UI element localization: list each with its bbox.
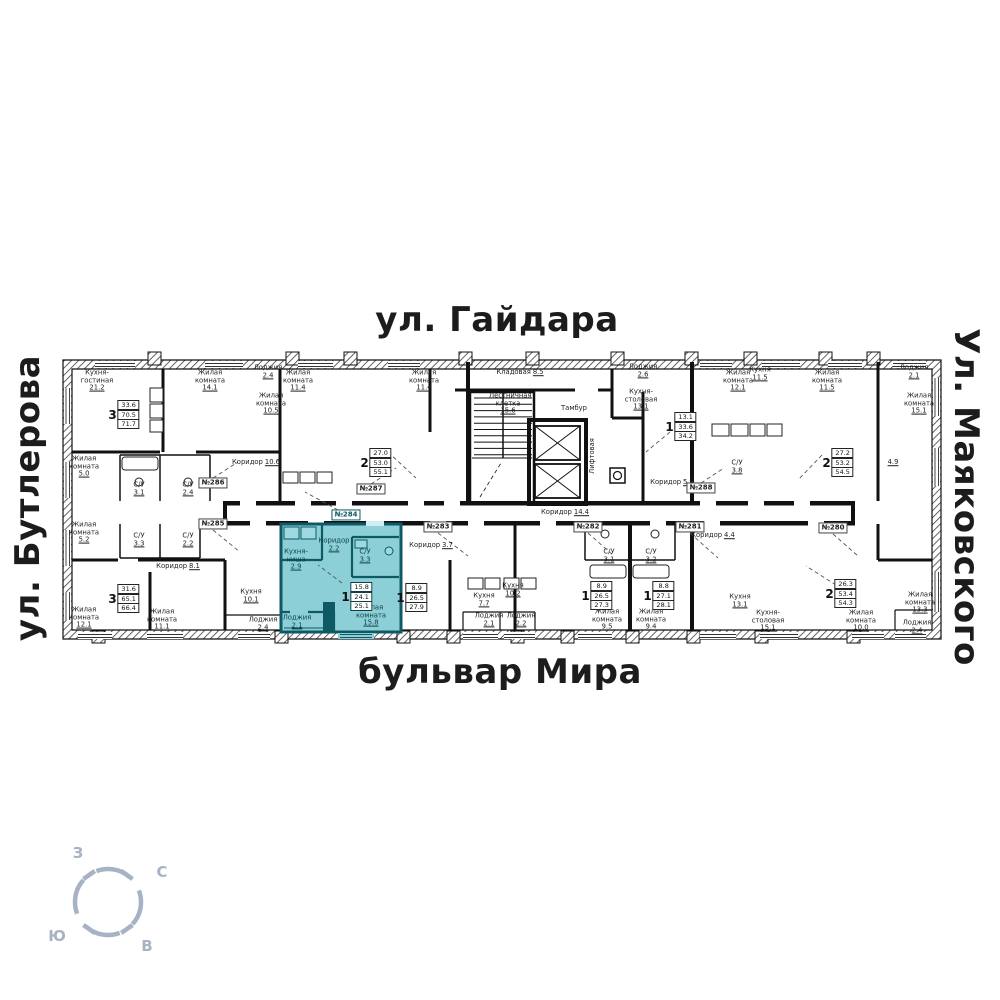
room-label: Кухня10.2 xyxy=(502,582,523,597)
area-value: 27.3 xyxy=(591,600,613,610)
area-value: 71.7 xyxy=(118,419,140,429)
room-label: Коридор8.1 xyxy=(156,563,200,571)
room-label: Лоджия2.4 xyxy=(249,616,278,631)
rooms-count: 3 xyxy=(108,592,116,606)
compass-ticks xyxy=(83,871,132,933)
room-label: Коридор4.4 xyxy=(691,532,735,540)
elevator-shafts xyxy=(529,420,625,504)
rooms-count: 1 xyxy=(396,591,404,605)
street-label-mayakovskogo: Ул. Маяковского xyxy=(946,328,986,666)
room-label: 4.9 xyxy=(888,459,899,467)
room-label: Жилая комната10.0 xyxy=(842,610,880,633)
room-label: Лоджия2.4 xyxy=(903,619,932,634)
room-label: С/У3.8 xyxy=(731,459,742,474)
room-label: Лоджия2.1 xyxy=(283,614,312,629)
room-label: Тамбур xyxy=(561,405,587,413)
area-badge[interactable]: 113.133.634.2 xyxy=(665,413,696,441)
street-label-bulvar-mira: бульвар Мира xyxy=(358,652,642,692)
apartment-tag-283[interactable]: №283 xyxy=(423,521,452,532)
room-label: Лестничная клетка15.6 xyxy=(489,393,527,416)
area-badge[interactable]: 331.665.166.4 xyxy=(108,585,139,613)
apartment-tag-287[interactable]: №287 xyxy=(356,483,385,494)
area-value: 54.3 xyxy=(835,598,857,608)
room-label: С/У2.4 xyxy=(182,481,193,496)
room-label: Кладовая8.5 xyxy=(496,369,543,377)
area-badge[interactable]: 18.827.128.1 xyxy=(643,582,674,610)
area-value: 66.4 xyxy=(118,603,140,613)
room-label: Кухня-столовая15.1 xyxy=(749,610,787,633)
area-badge[interactable]: 18.926.527.3 xyxy=(581,582,612,610)
compass-north-label: С xyxy=(156,863,167,881)
room-label: Коридор2.2 xyxy=(319,537,350,552)
compass-south-label: Ю xyxy=(48,927,66,945)
apartment-tag-288[interactable]: №288 xyxy=(686,482,715,493)
room-label: С/У3.3 xyxy=(133,532,144,547)
area-value: 25.1 xyxy=(351,601,373,611)
apartment-tag-286[interactable]: №286 xyxy=(198,477,227,488)
room-label: Жилая комната11.5 xyxy=(808,370,846,393)
room-label: Жилая комната12.1 xyxy=(65,607,103,630)
rooms-count: 1 xyxy=(643,589,651,603)
room-label: Жилая комната9.5 xyxy=(588,609,626,632)
apartment-tag-282[interactable]: №282 xyxy=(573,521,602,532)
area-badge[interactable]: 227.253.254.5 xyxy=(822,449,853,477)
room-label: Жилая комната13.3 xyxy=(901,592,939,615)
room-label: Жилая комната11.4 xyxy=(405,370,443,393)
room-label: Кухня-ниша2.9 xyxy=(277,549,315,572)
rooms-count: 1 xyxy=(665,420,673,434)
street-label-butlerova: ул. Бутлерова xyxy=(8,355,48,641)
room-label: Лоджия2.4 xyxy=(254,364,283,379)
rooms-count: 1 xyxy=(581,589,589,603)
room-label: Лоджия2.6 xyxy=(629,363,658,378)
room-label: Лоджия2.1 xyxy=(475,612,504,627)
room-label: Жилая комната5.0 xyxy=(65,456,103,479)
room-label: Коридор3.7 xyxy=(409,542,453,550)
compass-west-label: З xyxy=(73,844,84,862)
room-label: С/У2.2 xyxy=(182,532,193,547)
rooms-count: 2 xyxy=(360,456,368,470)
room-label: Кухня7.7 xyxy=(473,592,494,607)
room-label: С/У3.1 xyxy=(603,548,614,563)
rooms-count: 1 xyxy=(341,590,349,604)
room-label: Жилая комната5.2 xyxy=(65,522,103,545)
room-label: С/У3.3 xyxy=(359,548,370,563)
area-badge[interactable]: 226.353.454.3 xyxy=(825,580,856,608)
apartment-tag-285[interactable]: №285 xyxy=(198,518,227,529)
room-label: Кухня-столовая13.1 xyxy=(622,389,660,412)
room-label: Коридор10.6 xyxy=(232,459,280,467)
room-label: С/У3.2 xyxy=(645,548,656,563)
room-label: Кухня-гостиная21.2 xyxy=(78,370,116,393)
room-label: Лифтовая xyxy=(589,438,597,474)
area-value: 34.2 xyxy=(675,431,697,441)
room-label: Коридор14.4 xyxy=(541,509,589,517)
room-label: С/У3.1 xyxy=(133,481,144,496)
area-value: 28.1 xyxy=(653,600,675,610)
trash-chute-icon xyxy=(610,468,625,483)
area-badge[interactable]: 18.926.527.9 xyxy=(396,584,427,612)
area-badge[interactable]: 333.670.571.7 xyxy=(108,401,139,429)
room-label: Жилая комната11.4 xyxy=(279,370,317,393)
apartment-tag-281[interactable]: №281 xyxy=(675,521,704,532)
room-label: Кухня11.5 xyxy=(749,366,770,381)
area-badge[interactable]: 227.053.055.1 xyxy=(360,449,391,477)
area-badge[interactable]: 115.824.125.1 xyxy=(341,583,372,611)
street-label-gaidara: ул. Гайдара xyxy=(375,300,618,340)
room-label: Лоджия2.2 xyxy=(507,612,536,627)
compass xyxy=(45,840,175,970)
apartment-tag-284[interactable]: №284 xyxy=(331,509,360,520)
rooms-count: 2 xyxy=(825,587,833,601)
area-value: 55.1 xyxy=(370,467,392,477)
area-value: 54.5 xyxy=(832,467,854,477)
floorplan-page: ул. Гайдара бульвар Мира ул. Бутлерова У… xyxy=(0,0,1000,1000)
rooms-count: 2 xyxy=(822,456,830,470)
room-label: Лоджия2.1 xyxy=(900,364,929,379)
room-label: Жилая комната15.1 xyxy=(900,393,938,416)
room-label: Жилая комната11.1 xyxy=(143,609,181,632)
room-label: Кухня13.1 xyxy=(729,593,750,608)
room-label: Кухня10.1 xyxy=(240,588,261,603)
compass-east-label: В xyxy=(141,937,152,955)
area-value: 27.9 xyxy=(406,602,428,612)
room-label: Жилая комната10.5 xyxy=(252,393,290,416)
room-label: Жилая комната9.4 xyxy=(632,609,670,632)
apartment-tag-280[interactable]: №280 xyxy=(818,522,847,533)
room-label: Жилая комната14.1 xyxy=(191,370,229,393)
rooms-count: 3 xyxy=(108,408,116,422)
